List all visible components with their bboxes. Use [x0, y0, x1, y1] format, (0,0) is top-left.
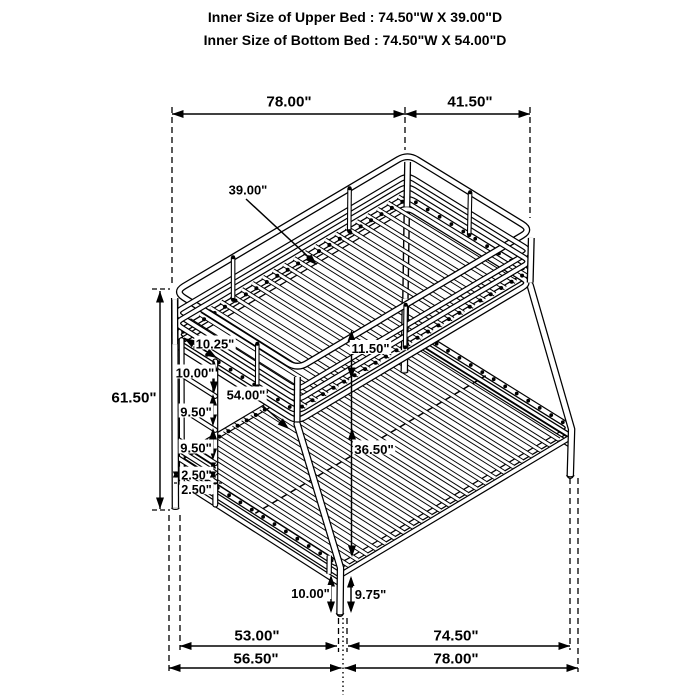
svg-text:10.00": 10.00": [291, 586, 330, 601]
svg-text:9.50": 9.50": [180, 405, 211, 420]
svg-text:2.50": 2.50": [181, 483, 212, 497]
svg-text:74.50": 74.50": [433, 628, 478, 645]
svg-text:Inner Size of Bottom Bed : 74.: Inner Size of Bottom Bed : 74.50"W X 54.…: [204, 32, 507, 48]
svg-text:11.50": 11.50": [352, 341, 390, 356]
svg-text:78.00": 78.00": [433, 651, 478, 668]
svg-text:53.00": 53.00": [234, 628, 279, 645]
svg-text:41.50": 41.50": [447, 94, 492, 111]
svg-text:54.00": 54.00": [227, 388, 266, 403]
svg-text:36.50": 36.50": [354, 442, 394, 457]
svg-text:9.50": 9.50": [180, 441, 211, 456]
svg-text:56.50": 56.50": [233, 651, 278, 668]
svg-text:2.50": 2.50": [181, 469, 212, 483]
svg-text:39.00": 39.00": [229, 183, 268, 198]
svg-text:10.25": 10.25": [196, 337, 235, 352]
svg-text:10.00": 10.00": [176, 366, 215, 381]
svg-text:9.75": 9.75": [355, 587, 386, 602]
svg-text:78.00": 78.00": [266, 94, 311, 111]
svg-text:61.50": 61.50": [111, 390, 156, 407]
svg-text:Inner Size of Upper Bed : 74.5: Inner Size of Upper Bed : 74.50"W X 39.0…: [208, 9, 502, 25]
